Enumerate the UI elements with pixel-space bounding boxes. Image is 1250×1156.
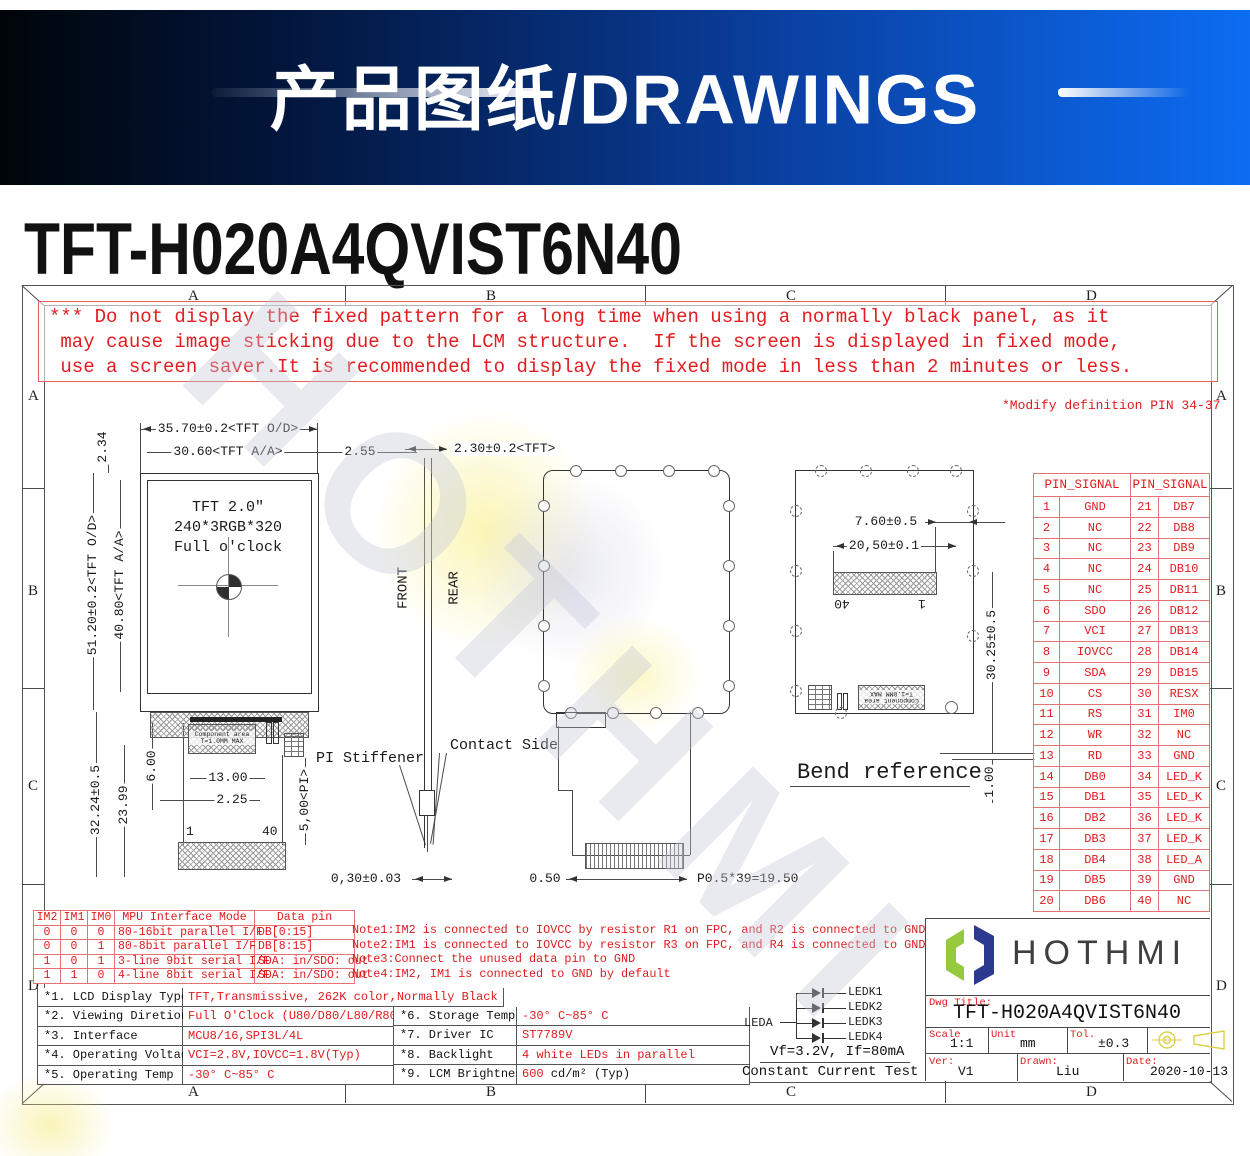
rear-fpc-edge <box>558 726 559 790</box>
dim-bend-2: 20,50±0.1 <box>847 539 921 553</box>
rear-fpc-edge <box>558 790 572 791</box>
dim-arrow <box>833 543 844 549</box>
component-area-label: Component area <box>859 697 924 704</box>
datasheet-page: 产品图纸/DRAWINGS HOTHMI TFT-H020A4QVIST6N40… <box>0 0 1250 1156</box>
titleblock-border <box>925 1053 1210 1054</box>
pin-signal: RS <box>1060 705 1131 726</box>
mpu-header: IM2 <box>34 911 61 926</box>
pin-signal: DB12 <box>1159 601 1210 622</box>
pin-signal: NC <box>1060 518 1131 539</box>
dwg-title-value: TFT-H020A4QVIST6N40 <box>953 1002 1181 1025</box>
spec-label: *1. LCD Display Type <box>37 988 183 1007</box>
pin-number: 32 <box>1131 725 1159 746</box>
dim-fpc-height: 32.24±0.5 <box>89 763 103 837</box>
mpu-data-pin: DB[8:15] <box>255 940 355 955</box>
titleblock-border <box>988 1027 989 1053</box>
bend-edge-hole <box>907 465 919 477</box>
spec-value: -30° C~85° C <box>183 1066 410 1085</box>
ledk-label: LEDK1 <box>848 986 883 999</box>
pin-signal: DB1 <box>1060 788 1131 809</box>
dim-arrow <box>566 876 577 882</box>
pin-number: 21 <box>1131 497 1159 518</box>
mpu-im2: 0 <box>34 940 61 955</box>
mpu-im1: 1 <box>61 969 88 984</box>
dim-bend-1: 7.60±0.5 <box>853 515 919 529</box>
pin-number: 25 <box>1131 580 1159 601</box>
rear-fpc-edge <box>572 790 573 855</box>
pin-signal: DB2 <box>1060 808 1131 829</box>
backlight-leda-label: LEDA <box>744 1016 773 1030</box>
circuit-wire <box>796 1038 812 1039</box>
fpc-contact-bar <box>190 717 282 722</box>
pin-signal: DB10 <box>1159 559 1210 580</box>
pin-number: 2 <box>1034 518 1060 539</box>
fpc-edge <box>282 755 283 845</box>
bend-edge-hole <box>967 630 979 642</box>
zone-letter-right: D <box>1216 978 1227 995</box>
zone-divider <box>1210 488 1232 489</box>
tol-label: Tol. <box>1070 1029 1095 1041</box>
unit-value: mm <box>1020 1036 1036 1051</box>
rear-fpc-tab <box>556 712 606 728</box>
dim-arrow <box>140 426 151 432</box>
mpu-header: MPU Interface Mode <box>115 911 255 926</box>
screen-viewing-text: Full o'clock <box>148 538 308 558</box>
pin-number: 8 <box>1034 642 1060 663</box>
pin-signal: LED_K <box>1159 829 1210 850</box>
pin-number: 1 <box>1034 497 1060 518</box>
spec-row: *6. Storage Temp -30° C~85° C <box>393 1007 750 1026</box>
led-diode-icon <box>812 988 826 998</box>
edge-hole <box>538 620 550 632</box>
pi-stiffener-label: PI Stiffener <box>316 750 424 767</box>
dim-comp-x: 2.25 <box>214 793 249 807</box>
pin-number: 35 <box>1131 788 1159 809</box>
pin-number: 31 <box>1131 705 1159 726</box>
mpu-header: IM1 <box>61 911 88 926</box>
dim-line <box>566 879 687 880</box>
pin-signal: NC <box>1060 539 1131 560</box>
edge-hole <box>708 465 720 477</box>
zone-divider <box>22 488 44 489</box>
pin-signal: WR <box>1060 725 1131 746</box>
pin-number: 27 <box>1131 622 1159 643</box>
rear-connector <box>585 843 684 869</box>
screen-size-text: TFT 2.0" <box>148 498 308 518</box>
mpu-data-pin: DB[0:15] <box>255 926 355 941</box>
bend-reference-label: Bend reference <box>797 760 982 785</box>
mpu-im1: 0 <box>61 955 88 970</box>
zone-divider <box>945 1081 946 1103</box>
mpu-data-pin: SDA: in/SDO: out <box>255 955 355 970</box>
dim-arrow <box>928 519 939 525</box>
mpu-im0: 1 <box>88 955 115 970</box>
backlight-test-label: Constant Current Test <box>742 1064 918 1080</box>
pin-number: 26 <box>1131 601 1159 622</box>
pin-number: 16 <box>1034 808 1060 829</box>
edge-hole <box>538 560 550 572</box>
mpu-mode: 4-line 8bit serial I/F <box>115 969 255 984</box>
zone-divider <box>22 688 44 689</box>
zone-letter-bottom: A <box>188 1084 199 1101</box>
ledk-label: LEDK2 <box>848 1001 883 1014</box>
mpu-header: IM0 <box>88 911 115 926</box>
pin-signal: GND <box>1159 746 1210 767</box>
mpu-im2: 1 <box>34 969 61 984</box>
zone-letter-bottom: B <box>486 1084 496 1101</box>
zone-letter-right: B <box>1216 583 1226 600</box>
pin-signal: DB15 <box>1159 663 1210 684</box>
dim-aa-height: 40.80<TFT A/A> <box>113 528 127 641</box>
pin-number: 23 <box>1131 539 1159 560</box>
pin-number: 40 <box>1131 891 1159 912</box>
bend-reference-underline <box>790 786 970 787</box>
banner-decor-line-right <box>1058 88 1190 97</box>
zone-letter-bottom: C <box>786 1084 796 1101</box>
page-title: TFT-H020A4QVIST6N40 <box>24 208 682 292</box>
zone-divider <box>22 884 44 885</box>
spec-row: *9. LCM Brightness 600 cd/m² (Typ) <box>393 1065 750 1084</box>
unit-label: Unit <box>991 1029 1016 1041</box>
pin-number: 37 <box>1131 829 1159 850</box>
pin-signal: RD <box>1060 746 1131 767</box>
pin-signal: LED_K <box>1159 767 1210 788</box>
titleblock-border <box>1017 1053 1018 1081</box>
pin-signal: LED_K <box>1159 808 1210 829</box>
screen-resolution-text: 240*3RGB*320 <box>148 518 308 538</box>
bend-component-area: Component area T=1.0MM MAX <box>858 685 925 710</box>
rear-fpc-edge <box>690 712 691 855</box>
pin-signal: DB13 <box>1159 622 1210 643</box>
bend-edge-hole <box>860 465 872 477</box>
pin-signal: IM0 <box>1159 705 1210 726</box>
led-diode-icon <box>812 1033 826 1043</box>
pin-number: 5 <box>1034 580 1060 601</box>
bend-hole <box>945 701 958 714</box>
spec-right-body: *6. Storage Temp -30° C~85° C *7. Driver… <box>393 1007 750 1085</box>
spec-row: *1. LCD Display Type TFT,Transmissive, 2… <box>37 988 504 1007</box>
test-divider <box>760 1062 910 1063</box>
spec-label: *4. Operating Voltage <box>37 1046 183 1065</box>
spec-label: *5. Operating Temp <box>37 1066 183 1085</box>
spec-label: *9. LCM Brightness <box>393 1065 517 1084</box>
circuit-wire <box>780 1022 796 1023</box>
projection-symbol-icon <box>1152 1030 1228 1050</box>
pin-number: 36 <box>1131 808 1159 829</box>
center-mark-icon <box>216 574 242 600</box>
pin-signal: LED_K <box>1159 788 1210 809</box>
pin-number: 15 <box>1034 788 1060 809</box>
dim-arrow <box>412 876 423 882</box>
pin-number: 13 <box>1034 746 1060 767</box>
pin-signal: RESX <box>1159 684 1210 705</box>
zone-letter-left: C <box>28 778 38 795</box>
bend-edge-hole <box>950 465 962 477</box>
rear-view-outline <box>543 470 730 714</box>
pin-signal: DB11 <box>1159 580 1210 601</box>
pin-number: 39 <box>1131 871 1159 892</box>
pin-number: 9 <box>1034 663 1060 684</box>
titleblock-border <box>925 995 1210 996</box>
pin-signal: NC <box>1159 891 1210 912</box>
pin-number: 29 <box>1131 663 1159 684</box>
pin-signal: VCI <box>1060 622 1131 643</box>
pin-signal: SDA <box>1060 663 1131 684</box>
drawn-label: Drawn: <box>1020 1056 1058 1068</box>
mpu-data-pin: SDA: in/SDO: out <box>255 969 355 984</box>
spec-value: 600 cd/m² (Typ) <box>517 1065 750 1084</box>
pin-number-label: 1 <box>184 825 196 839</box>
zone-letter-left: B <box>28 583 38 600</box>
spec-table-right: *6. Storage Temp -30° C~85° C *7. Driver… <box>393 1007 750 1085</box>
pin-signal: NC <box>1060 559 1131 580</box>
hothmi-logo-icon <box>938 924 1002 986</box>
pin-signal: DB3 <box>1060 829 1131 850</box>
brand-name: HOTHMI <box>1012 934 1188 973</box>
tol-value: ±0.3 <box>1098 1036 1129 1051</box>
edge-hole <box>723 620 735 632</box>
mpu-mode: 3-line 9bit serial I/F <box>115 955 255 970</box>
warning-box: *** Do not display the fixed pattern for… <box>38 301 1218 382</box>
pin-number: 6 <box>1034 601 1060 622</box>
pin-number: 34 <box>1131 767 1159 788</box>
bend-pin-label: 1 <box>916 596 928 610</box>
pin-number-label: 40 <box>260 825 280 839</box>
spec-value: Full O'Clock (U80/D80/L80/R80) <box>183 1007 410 1026</box>
bend-edge-hole <box>790 505 802 517</box>
dim-arrow <box>444 876 455 882</box>
bend-edge-hole <box>967 505 979 517</box>
bend-edge-hole <box>815 465 827 477</box>
pin-number: 24 <box>1131 559 1159 580</box>
mpu-im1: 0 <box>61 940 88 955</box>
bend-edge-hole <box>835 707 847 719</box>
spec-value: MCU8/16,SPI3L/4L <box>183 1027 410 1046</box>
component-area-label: T=1.0MM MAX <box>189 738 255 745</box>
pin-number: 19 <box>1034 871 1060 892</box>
fpc-detail <box>273 722 279 744</box>
dim-bend-4: 1.00 <box>983 764 997 799</box>
pin-number: 7 <box>1034 622 1060 643</box>
fpc-detail <box>266 722 272 744</box>
dim-top-bezel: 2.34 <box>96 429 110 464</box>
bend-ref-line <box>940 753 1035 754</box>
component-area-label: T=1.0MM MAX <box>859 690 924 697</box>
dim-pitch: P0.5*39=19.50 <box>695 872 800 886</box>
pin-signal: DB9 <box>1159 539 1210 560</box>
pin-signal: SDO <box>1060 601 1131 622</box>
modify-note: *Modify definition PIN 34-37 <box>1002 398 1220 413</box>
dim-arrow <box>405 446 416 452</box>
pin-number: 30 <box>1131 684 1159 705</box>
screen-description: TFT 2.0" 240*3RGB*320 Full o'clock <box>148 498 308 558</box>
spec-value: VCI=2.8V,IOVCC=1.8V(Typ) <box>183 1046 410 1065</box>
spec-label: *6. Storage Temp <box>393 1007 517 1026</box>
circuit-wire <box>824 1023 846 1024</box>
mpu-im1: 0 <box>61 926 88 941</box>
note-line: Note3:Connect the unused data pin to GND <box>352 952 925 967</box>
warning-line: may cause image sticking due to the LCM … <box>39 330 1217 355</box>
spec-label: *8. Backlight <box>393 1046 517 1065</box>
pin-signal: IOVCC <box>1060 642 1131 663</box>
component-area-box: Component area T=1.0MM MAX <box>188 724 256 754</box>
edge-hole <box>692 707 704 719</box>
pin-number: 11 <box>1034 705 1060 726</box>
circuit-wire <box>796 1023 812 1024</box>
side-profile-line <box>427 814 428 852</box>
spec-value: TFT,Transmissive, 262K color,Normally Bl… <box>183 988 504 1007</box>
pin-number: 22 <box>1131 518 1159 539</box>
edge-hole <box>723 500 735 512</box>
note-line: Note4:IM2, IM1 is connected to GND by de… <box>352 967 925 982</box>
pin-number: 4 <box>1034 559 1060 580</box>
contact-side-label: Contact Side <box>450 737 558 754</box>
spec-label: *3. Interface <box>37 1027 183 1046</box>
front-label: FRONT <box>396 565 411 611</box>
edge-hole <box>570 465 582 477</box>
dim-arrow <box>966 519 977 525</box>
dim-arrow <box>309 426 320 432</box>
spec-label: *2. Viewing Diretion <box>37 1007 183 1026</box>
edge-hole <box>607 707 619 719</box>
dim-od-height: 51.20±0.2<TFT O/D> <box>86 513 100 657</box>
led-diode-icon <box>812 1003 826 1013</box>
drawn-value: Liu <box>1056 1064 1079 1079</box>
pin-signal: DB7 <box>1159 497 1210 518</box>
dim-thickness: 2.30±0.2<TFT> <box>452 442 557 456</box>
spec-value: 4 white LEDs in parallel <box>517 1046 750 1065</box>
spec-row: *7. Driver IC ST7789V <box>393 1026 750 1045</box>
titleblock-border <box>1067 1027 1068 1053</box>
dim-comp-width: 13.00 <box>206 771 249 785</box>
bend-edge-hole <box>790 625 802 637</box>
pin-signal: DB14 <box>1159 642 1210 663</box>
edge-hole <box>615 465 627 477</box>
mpu-header: Data pin <box>255 911 355 926</box>
zone-letter-bottom: D <box>1086 1084 1097 1101</box>
pin-number: 20 <box>1034 891 1060 912</box>
pin-signal: DB6 <box>1060 891 1131 912</box>
pin-number: 3 <box>1034 539 1060 560</box>
header-banner: 产品图纸/DRAWINGS <box>0 10 1250 185</box>
dim-aa-width: 30.60<TFT A/A> <box>171 445 284 459</box>
dim-arrow <box>948 543 959 549</box>
circuit-wire <box>796 993 812 994</box>
zone-divider <box>1210 688 1232 689</box>
dim-fpc-height2: 23.99 <box>117 783 131 826</box>
pin-number: 12 <box>1034 725 1060 746</box>
bend-connector-hatch <box>833 572 937 595</box>
bend-detail-grid <box>808 685 832 710</box>
circuit-wire <box>796 1008 812 1009</box>
titleblock-border <box>1123 1053 1124 1081</box>
pin-signal: CS <box>1060 684 1131 705</box>
zone-letter-left: A <box>28 388 39 405</box>
pin-signal: DB0 <box>1060 767 1131 788</box>
circuit-wire <box>824 993 846 994</box>
backlight-test-values: Vf=3.2V, If=80mA <box>770 1044 904 1060</box>
ver-value: V1 <box>958 1064 974 1079</box>
warning-text: *** Do not display the fixed pattern for… <box>39 302 1217 380</box>
dim-pi-height: 5,00<PI> <box>298 767 312 833</box>
side-profile-line <box>431 458 432 790</box>
bend-pin-label: 40 <box>832 596 852 610</box>
banner-title: 产品图纸/DRAWINGS <box>270 43 980 144</box>
dim-gap-right: 2.55 <box>342 445 377 459</box>
led-diode-icon <box>812 1018 826 1028</box>
pin-signal: NC <box>1060 580 1131 601</box>
circuit-wire <box>824 1008 846 1009</box>
pin-table-header: PIN_SIGNAL <box>1034 474 1131 497</box>
warning-line: use a screen saver.It is recommended to … <box>39 355 1217 380</box>
pin-signal: DB5 <box>1060 871 1131 892</box>
edge-hole <box>538 500 550 512</box>
dim-bend-3: 30.25±0.5 <box>985 608 999 682</box>
rear-label: REAR <box>447 569 462 607</box>
pin-number: 17 <box>1034 829 1060 850</box>
edge-hole <box>723 560 735 572</box>
pin-signal: NC <box>1159 725 1210 746</box>
mpu-mode: 80-16bit parallel I/F <box>115 926 255 941</box>
zone-divider <box>1210 884 1232 885</box>
mpu-mode: 80-8bit parallel I/F <box>115 940 255 955</box>
dim-fpc-thickness: 0,30±0.03 <box>329 872 403 886</box>
ledk-label: LEDK4 <box>848 1031 883 1044</box>
pin-number: 28 <box>1131 642 1159 663</box>
pin-number: 33 <box>1131 746 1159 767</box>
fpc-connector <box>178 842 286 870</box>
mpu-im0: 1 <box>88 940 115 955</box>
spec-value: -30° C~85° C <box>517 1007 750 1026</box>
bend-edge-hole <box>967 565 979 577</box>
fpc-detail-grid <box>284 733 304 757</box>
note-line: Note1:IM2 is connected to IOVCC by resis… <box>352 923 925 938</box>
pin-signal: LED_A <box>1159 850 1210 871</box>
warning-line: *** Do not display the fixed pattern for… <box>39 305 1217 330</box>
pin-number: 38 <box>1131 850 1159 871</box>
edge-hole <box>538 680 550 692</box>
pin-table-header: PIN_SIGNAL <box>1131 474 1210 497</box>
pin-signal: GND <box>1060 497 1131 518</box>
mpu-im2: 0 <box>34 926 61 941</box>
scale-value: 1:1 <box>950 1036 973 1051</box>
pin-signal: DB8 <box>1159 518 1210 539</box>
ledk-label: LEDK3 <box>848 1016 883 1029</box>
circuit-wire <box>796 993 797 1038</box>
spec-value: ST7789V <box>517 1026 750 1045</box>
mpu-im2: 1 <box>34 955 61 970</box>
ver-label: Ver: <box>929 1056 954 1068</box>
pin-number: 18 <box>1034 850 1060 871</box>
circuit-wire <box>824 1038 846 1039</box>
pin-signal: GND <box>1159 871 1210 892</box>
bend-edge-hole <box>790 565 802 577</box>
dim-od-width: 35.70±0.2<TFT O/D> <box>156 422 300 436</box>
dim-comp-offset: 6.00 <box>145 748 159 783</box>
note-line: Note2:IM1 is connected to IOVCC by resis… <box>352 938 925 953</box>
edge-hole <box>650 707 662 719</box>
pin-number: 10 <box>1034 684 1060 705</box>
mpu-im0: 0 <box>88 969 115 984</box>
pin-signal: DB4 <box>1060 850 1131 871</box>
titleblock-border <box>925 918 1210 919</box>
dim-conn-edge: 0.50 <box>527 872 562 886</box>
pin-signal-table: PIN_SIGNAL PIN_SIGNAL 1 GND 21 DB7 2 NC … <box>1033 473 1210 912</box>
dim-arrow <box>439 446 450 452</box>
spec-row: *8. Backlight 4 white LEDs in parallel <box>393 1046 750 1065</box>
mpu-interface-table: IM2 IM1 IM0 MPU Interface Mode Data pin … <box>33 910 355 984</box>
edge-hole <box>663 465 675 477</box>
